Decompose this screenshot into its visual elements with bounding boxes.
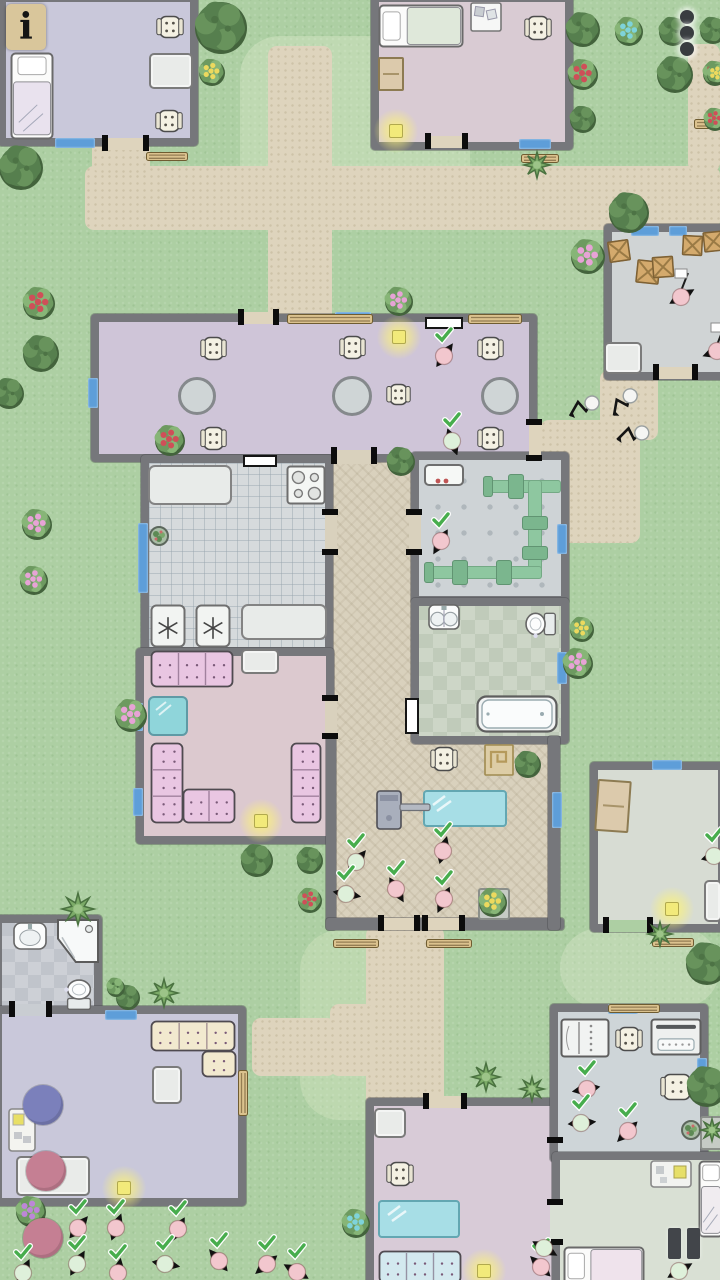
fridge[interactable] [195, 604, 231, 648]
lamp[interactable] [392, 330, 406, 344]
flower-bush [610, 12, 646, 48]
star-plant [520, 148, 554, 182]
flower-bush [702, 59, 720, 87]
flower-bush [558, 643, 596, 681]
bench[interactable] [608, 998, 660, 1007]
creature-green-check[interactable] [699, 826, 720, 870]
door[interactable] [333, 450, 373, 464]
tree [292, 842, 326, 876]
flower-bush [565, 612, 597, 644]
sink[interactable] [13, 922, 47, 950]
armchair[interactable] [615, 1025, 643, 1053]
door-jamb [378, 915, 384, 931]
flower-bush [337, 1204, 373, 1240]
sink[interactable] [428, 604, 460, 630]
table[interactable] [241, 649, 279, 674]
door-jamb [423, 1093, 429, 1109]
door-jamb [603, 917, 609, 933]
flower-bush [15, 561, 51, 597]
armchair[interactable] [477, 425, 504, 452]
door-jamb [459, 915, 465, 931]
flower-bush [150, 420, 188, 458]
door-jamb [273, 309, 279, 325]
star-plant [697, 1115, 720, 1145]
door-jamb [422, 915, 428, 931]
path [332, 452, 416, 744]
door[interactable] [104, 138, 146, 150]
door-jamb [322, 549, 338, 555]
tree [236, 839, 276, 879]
lamp[interactable] [665, 902, 679, 916]
window [138, 523, 148, 593]
creature-green-check[interactable] [62, 1234, 92, 1278]
table[interactable] [149, 53, 193, 89]
person[interactable] [567, 392, 603, 422]
tree [0, 373, 27, 411]
door-jamb [406, 549, 422, 555]
door-jamb [46, 1001, 52, 1017]
door-jamb [547, 1199, 563, 1205]
path [252, 1018, 336, 1076]
counter[interactable] [148, 465, 232, 505]
tree [561, 7, 603, 49]
sign [243, 455, 277, 467]
star-plant [516, 1073, 548, 1105]
tree [681, 937, 720, 987]
armchair[interactable] [200, 335, 227, 362]
armchair[interactable] [386, 1160, 414, 1188]
creature-pink-check[interactable] [204, 1231, 234, 1275]
table[interactable] [152, 1066, 182, 1104]
armchair[interactable] [156, 14, 184, 40]
tree [0, 140, 46, 192]
pipe [487, 480, 561, 493]
path [330, 1004, 374, 1076]
bed[interactable] [378, 4, 464, 48]
tree [510, 746, 544, 780]
crate[interactable] [607, 239, 632, 264]
tree [695, 12, 720, 46]
pipe-joint [483, 476, 493, 497]
armchair[interactable] [200, 425, 227, 452]
lamp[interactable] [389, 124, 403, 138]
door[interactable] [325, 700, 337, 734]
creature-pink-check[interactable] [252, 1234, 282, 1278]
info-button[interactable]: i [6, 4, 46, 50]
armchair[interactable] [339, 334, 366, 361]
door[interactable] [240, 312, 274, 324]
star-plant [146, 975, 182, 1011]
round-table[interactable] [178, 377, 216, 415]
bed[interactable] [10, 52, 54, 140]
fridge[interactable] [150, 604, 186, 648]
flower-bush [380, 282, 416, 318]
toilet[interactable] [524, 610, 558, 638]
door-jamb [371, 447, 377, 464]
flower-bush [566, 234, 608, 276]
door-jamb [414, 915, 420, 931]
sofa[interactable] [182, 788, 236, 824]
door-jamb [322, 509, 338, 515]
creature-pink-check[interactable] [381, 859, 411, 903]
lamp[interactable] [477, 1264, 491, 1278]
door-jamb [692, 364, 698, 380]
counter[interactable] [241, 604, 327, 640]
creature-pink-check[interactable] [101, 1198, 131, 1242]
dresser[interactable] [378, 57, 404, 91]
sofa[interactable] [150, 742, 184, 824]
tree [190, 0, 250, 56]
flower-bush [194, 54, 228, 88]
pipe-joint [424, 562, 434, 583]
door[interactable] [427, 136, 465, 148]
creature-green-check[interactable] [150, 1234, 180, 1278]
sofa[interactable] [150, 650, 234, 688]
stove[interactable] [286, 465, 326, 505]
door[interactable] [655, 367, 693, 379]
bed[interactable] [563, 1246, 645, 1280]
door-jamb [322, 733, 338, 739]
door[interactable] [409, 514, 421, 550]
info-icon: i [19, 6, 33, 48]
round-table[interactable] [481, 377, 519, 415]
sofa[interactable] [201, 1050, 237, 1078]
window [652, 760, 682, 770]
creature-green-check[interactable] [437, 411, 467, 455]
creature-pink-flag[interactable] [666, 267, 696, 311]
potted-plant[interactable] [148, 525, 170, 547]
creature-green-check[interactable] [566, 1093, 596, 1137]
crate[interactable] [681, 234, 703, 256]
pipe-joint [522, 546, 548, 560]
table[interactable] [604, 342, 642, 374]
window [557, 524, 567, 554]
sofa[interactable] [290, 742, 322, 824]
flower-bush [110, 694, 150, 734]
pipe-joint [496, 560, 512, 585]
window [88, 378, 98, 408]
toilet[interactable] [64, 978, 94, 1012]
armchair[interactable] [477, 335, 504, 362]
lamp[interactable] [117, 1181, 131, 1195]
star-plant [644, 918, 676, 950]
bench[interactable] [468, 309, 522, 319]
game-map [0, 0, 720, 1280]
lamp[interactable] [254, 814, 268, 828]
creature-pink-flag[interactable] [702, 321, 720, 365]
menu-dot[interactable] [680, 42, 694, 56]
desk[interactable] [650, 1160, 692, 1188]
creature-pink-check[interactable] [103, 1243, 133, 1280]
door[interactable] [382, 918, 416, 930]
crate[interactable] [702, 230, 720, 253]
flower-bush [563, 54, 601, 92]
door-jamb [102, 135, 108, 151]
armchair[interactable] [155, 108, 183, 134]
door-jamb [322, 695, 338, 701]
pause-bar [668, 1228, 681, 1259]
creature-pink-check[interactable] [428, 821, 458, 865]
armchair[interactable] [386, 382, 411, 407]
bench[interactable] [333, 933, 379, 942]
door[interactable] [529, 424, 541, 456]
cyan-table[interactable] [148, 696, 188, 736]
bench[interactable] [426, 933, 472, 942]
window [552, 792, 562, 828]
pipe-joint [522, 516, 548, 530]
tree [604, 187, 652, 235]
sofa[interactable] [150, 1020, 236, 1052]
oven[interactable] [650, 1018, 702, 1056]
bed[interactable] [698, 1160, 720, 1238]
door-jamb [406, 509, 422, 515]
armchair[interactable] [524, 14, 552, 42]
big-creature[interactable] [26, 1151, 66, 1191]
pause-button[interactable] [668, 1228, 700, 1259]
door-jamb [526, 419, 542, 425]
door[interactable] [13, 1004, 48, 1016]
door[interactable] [325, 514, 337, 550]
creature-pink-check[interactable] [429, 869, 459, 913]
creature-green[interactable] [529, 1218, 559, 1262]
tree [682, 1061, 720, 1109]
menu-dot[interactable] [680, 26, 694, 40]
window [55, 138, 95, 148]
creature-pink-check[interactable] [429, 326, 459, 370]
creature-pink-check[interactable] [613, 1101, 643, 1145]
tree [18, 330, 62, 374]
bathtub[interactable] [476, 695, 558, 733]
flower-bush [17, 504, 55, 542]
creature-pink-check[interactable] [426, 511, 456, 555]
door-jamb [526, 455, 542, 461]
door-jamb [461, 1093, 467, 1109]
dresser[interactable] [594, 779, 632, 833]
creature-green-check[interactable] [8, 1243, 38, 1280]
creature-pink-check[interactable] [282, 1242, 312, 1280]
flower-bush [18, 282, 58, 322]
door[interactable] [427, 1096, 463, 1108]
flower-bush [474, 883, 510, 919]
game-viewport: i [0, 0, 720, 1280]
window [133, 788, 143, 816]
door[interactable] [607, 920, 649, 932]
bush [102, 973, 128, 999]
pause-bar [687, 1228, 700, 1259]
star-plant [468, 1059, 504, 1095]
door-jamb [238, 309, 244, 325]
armchair[interactable] [430, 745, 458, 773]
piano[interactable] [560, 1018, 610, 1058]
sofa[interactable] [378, 1250, 462, 1280]
table[interactable] [704, 880, 720, 922]
machine[interactable] [376, 790, 432, 830]
tree [652, 51, 696, 95]
creature-green-check[interactable] [331, 864, 361, 908]
tree [565, 101, 599, 135]
bench[interactable] [146, 146, 188, 155]
door[interactable] [425, 918, 461, 930]
door-jamb [425, 133, 431, 149]
pipe [424, 566, 542, 579]
sign [405, 698, 419, 734]
flower-bush [293, 883, 325, 915]
bench[interactable] [238, 1070, 248, 1116]
wall [548, 736, 560, 930]
bench[interactable] [287, 309, 373, 319]
pipe-joint [508, 474, 524, 499]
pipe-joint [452, 560, 468, 585]
flower-bush [699, 103, 720, 133]
path [366, 926, 444, 1110]
door-jamb [9, 1001, 15, 1017]
table[interactable] [374, 1108, 406, 1138]
big-creature[interactable] [23, 1085, 63, 1125]
star-plant [58, 889, 98, 929]
door-jamb [462, 133, 468, 149]
pool[interactable] [378, 1200, 460, 1238]
tree [382, 442, 418, 478]
menu-dot[interactable] [680, 10, 694, 24]
door-jamb [331, 447, 337, 464]
round-table[interactable] [332, 376, 372, 416]
door-jamb [653, 364, 659, 380]
desk[interactable] [470, 2, 502, 32]
counter[interactable] [424, 464, 464, 486]
door-jamb [547, 1137, 563, 1143]
